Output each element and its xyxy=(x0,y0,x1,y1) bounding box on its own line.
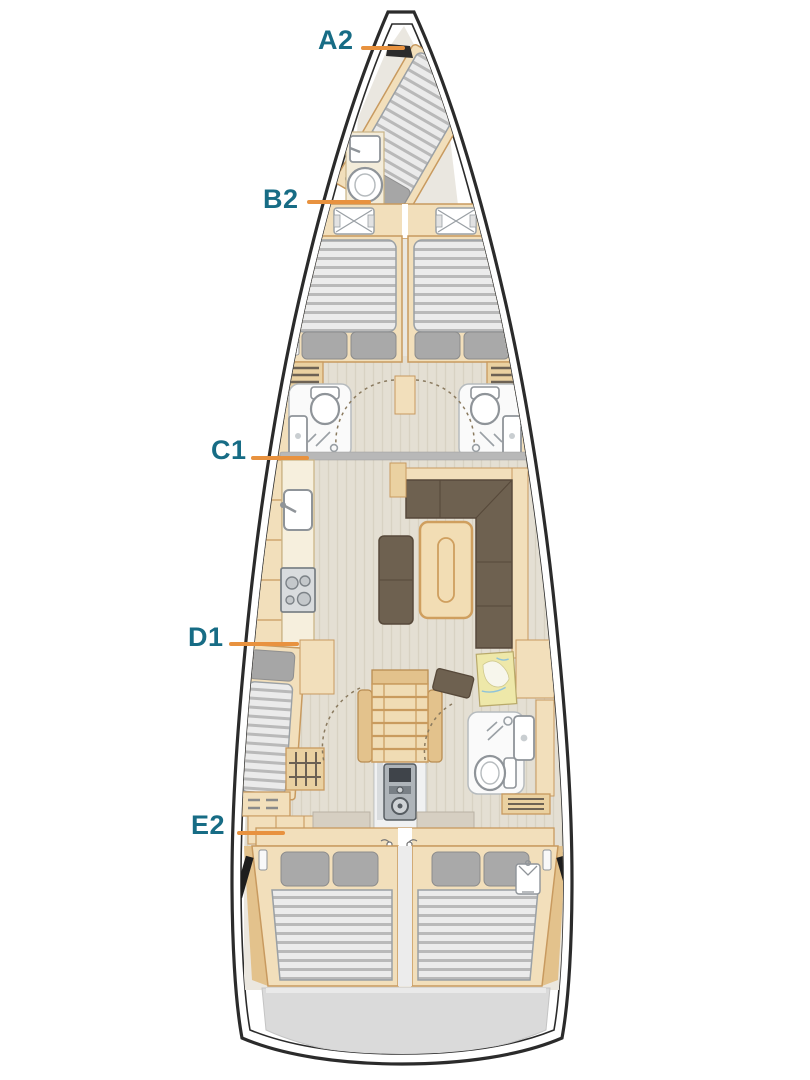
toilet-icon xyxy=(311,387,339,424)
hanging-locker-icon xyxy=(516,861,540,894)
cabin-door xyxy=(313,812,370,828)
sofa-trim xyxy=(512,468,528,658)
yacht-layout-plan: A2 B2 C1 D1 E2 xyxy=(0,0,810,1080)
pillow-icon xyxy=(302,332,347,359)
reading-light-icon xyxy=(543,850,551,870)
bow-toilet-icon xyxy=(348,168,382,202)
saloon-bulkhead xyxy=(280,452,542,460)
cabin-door xyxy=(417,812,474,828)
door-post xyxy=(395,376,415,414)
double-berth-icon xyxy=(272,890,392,980)
stern-platform-edge xyxy=(266,988,546,993)
bed-divider xyxy=(398,846,412,986)
cabin-label-e2: E2 xyxy=(191,812,225,839)
pillow-icon xyxy=(464,332,509,359)
pillow-icon xyxy=(432,852,480,886)
cabin-label-a2: A2 xyxy=(318,27,354,54)
drawer-unit-icon xyxy=(502,794,550,814)
cabinet xyxy=(516,640,554,698)
double-berth-icon xyxy=(418,890,538,980)
toilet-icon xyxy=(471,387,499,424)
cabin-label-c1: C1 xyxy=(211,437,247,464)
engine-icon xyxy=(377,756,416,820)
deck-plan-svg xyxy=(0,0,810,1080)
sink-icon xyxy=(503,416,521,456)
toilet-icon xyxy=(475,756,516,790)
saloon-table-icon xyxy=(420,522,472,618)
cabinet xyxy=(536,700,554,796)
chart-table-icon xyxy=(476,652,517,706)
aft-port-bed xyxy=(252,846,398,986)
bow-sink-icon xyxy=(350,136,380,162)
pillow-icon xyxy=(333,852,378,886)
galley-sink-icon xyxy=(280,490,312,530)
sink-icon xyxy=(289,416,307,456)
deck-hatch-icon xyxy=(436,208,476,234)
leader-line-a2 xyxy=(361,46,405,50)
pillow-icon xyxy=(415,332,460,359)
cabinet xyxy=(300,640,334,694)
sofa-trim xyxy=(398,468,522,480)
leader-line-c1 xyxy=(251,456,309,460)
forward-shelf xyxy=(318,204,492,238)
sink-icon xyxy=(514,716,534,760)
reading-light-icon xyxy=(259,850,267,870)
starboard-head xyxy=(459,384,521,458)
leader-line-e2 xyxy=(237,831,285,835)
pillow-icon xyxy=(249,650,295,682)
cabin-label-b2: B2 xyxy=(263,186,299,213)
leader-line-b2 xyxy=(307,200,371,204)
deck-hatch-icon xyxy=(334,208,374,234)
slat-shelf-icon xyxy=(286,748,324,790)
cabin-label-d1: D1 xyxy=(188,624,224,651)
mast-post xyxy=(390,463,406,497)
galley-counter xyxy=(282,460,314,650)
stove-icon xyxy=(281,568,315,612)
pillow-icon xyxy=(351,332,396,359)
drawer-unit-icon xyxy=(242,792,290,816)
pillow-icon xyxy=(281,852,329,886)
leader-line-d1 xyxy=(229,642,299,646)
aft-cabins xyxy=(244,812,566,986)
port-head xyxy=(289,384,351,458)
